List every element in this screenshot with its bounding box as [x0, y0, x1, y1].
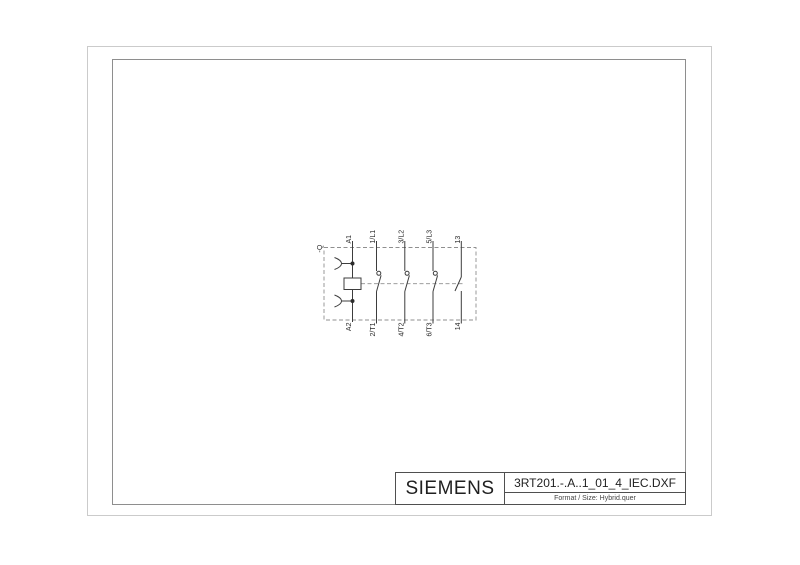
connector-chevron-icon [335, 295, 342, 307]
pole1-top-terminal-label: 1/L1 [370, 230, 377, 244]
terminal-dot [351, 262, 355, 266]
pole3-top-terminal-label: 5/L3 [427, 230, 434, 244]
coil-branch [335, 241, 362, 322]
coil-terminal-label-a1: A1 [346, 235, 353, 244]
main-contact-pole-3 [433, 241, 438, 324]
pole4-top-terminal-label: 13 [455, 236, 462, 244]
auxiliary-contact-pole [455, 241, 461, 324]
title-block: SIEMENS 3RT201.-.A..1_01_4_IEC.DXF Forma… [395, 472, 686, 505]
pole4-bottom-terminal-label: 14 [455, 322, 462, 330]
pole3-bottom-terminal-label: 6/T3 [427, 322, 434, 336]
drawing-filename: 3RT201.-.A..1_01_4_IEC.DXF [505, 473, 685, 493]
device-tag-label: -Q [317, 244, 324, 252]
title-block-right: 3RT201.-.A..1_01_4_IEC.DXF Format / Size… [505, 473, 685, 504]
coil-terminal-label-a2: A2 [346, 322, 353, 331]
main-contact-pole-1 [377, 241, 382, 324]
coil-symbol [344, 278, 361, 290]
pole2-bottom-terminal-label: 4/T2 [398, 322, 405, 336]
connector-chevron-icon [335, 258, 342, 270]
main-contact-pole-2 [405, 241, 410, 324]
pole1-bottom-terminal-label: 2/T1 [370, 322, 377, 336]
brand-logo-text: SIEMENS [396, 473, 505, 504]
terminal-dot [351, 299, 355, 303]
pole2-top-terminal-label: 3/L2 [398, 230, 405, 244]
format-size-label: Format / Size: Hybrid.quer [505, 493, 685, 504]
